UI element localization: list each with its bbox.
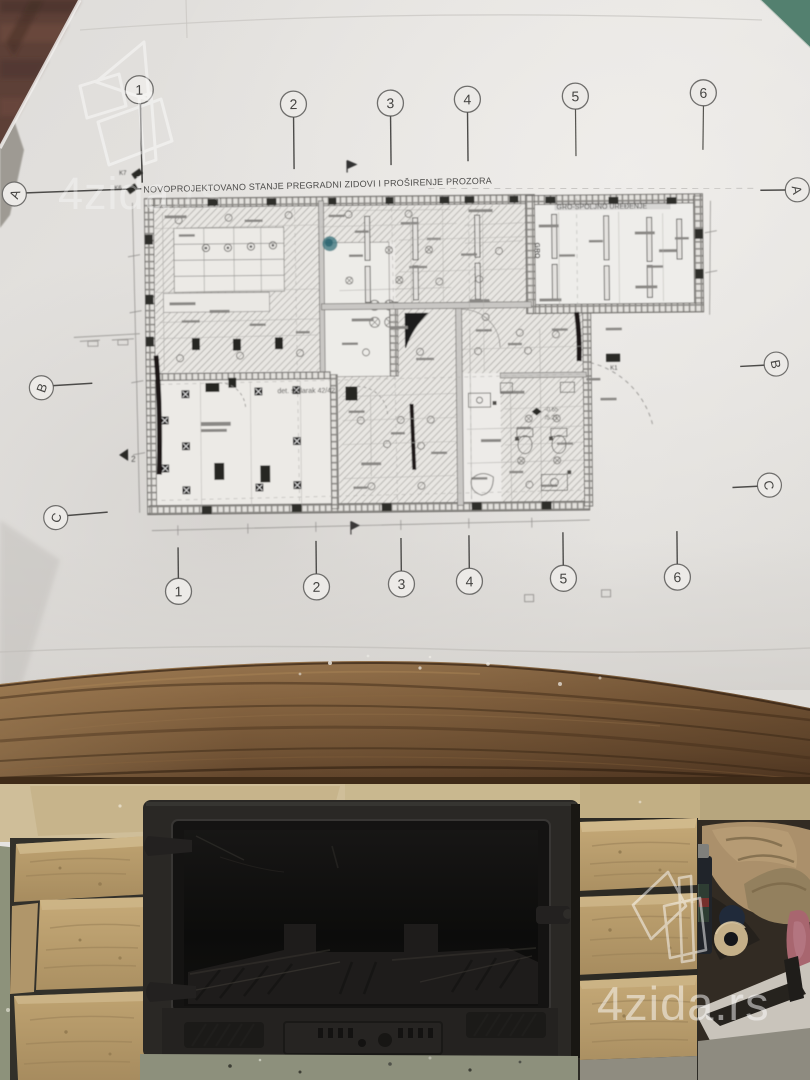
svg-text:4zida.rs: 4zida.rs [597, 977, 770, 1030]
svg-text:4: 4 [463, 91, 471, 107]
svg-text:3: 3 [386, 95, 394, 111]
svg-text:det. stolarak 42/42: det. stolarak 42/42 [277, 388, 335, 396]
svg-text:2: 2 [289, 96, 297, 112]
svg-text:4: 4 [465, 573, 473, 589]
svg-text:GRO: GRO [533, 243, 540, 260]
svg-text:6: 6 [673, 569, 681, 585]
svg-text:5: 5 [571, 88, 579, 104]
svg-text:4zida.rs: 4zida.rs [58, 168, 224, 219]
svg-text:-0.65: -0.65 [545, 407, 559, 413]
svg-text:GRO-SPOLJNO UREĐENJE: GRO-SPOLJNO UREĐENJE [556, 203, 647, 211]
svg-text:2: 2 [312, 579, 320, 595]
svg-text:5: 5 [559, 570, 567, 586]
svg-text:3: 3 [397, 576, 405, 592]
svg-text:2: 2 [131, 455, 136, 464]
svg-text:/5.21: /5.21 [545, 415, 559, 421]
svg-text:6: 6 [699, 85, 707, 101]
svg-text:K1: K1 [610, 366, 618, 372]
svg-text:1: 1 [175, 583, 183, 599]
